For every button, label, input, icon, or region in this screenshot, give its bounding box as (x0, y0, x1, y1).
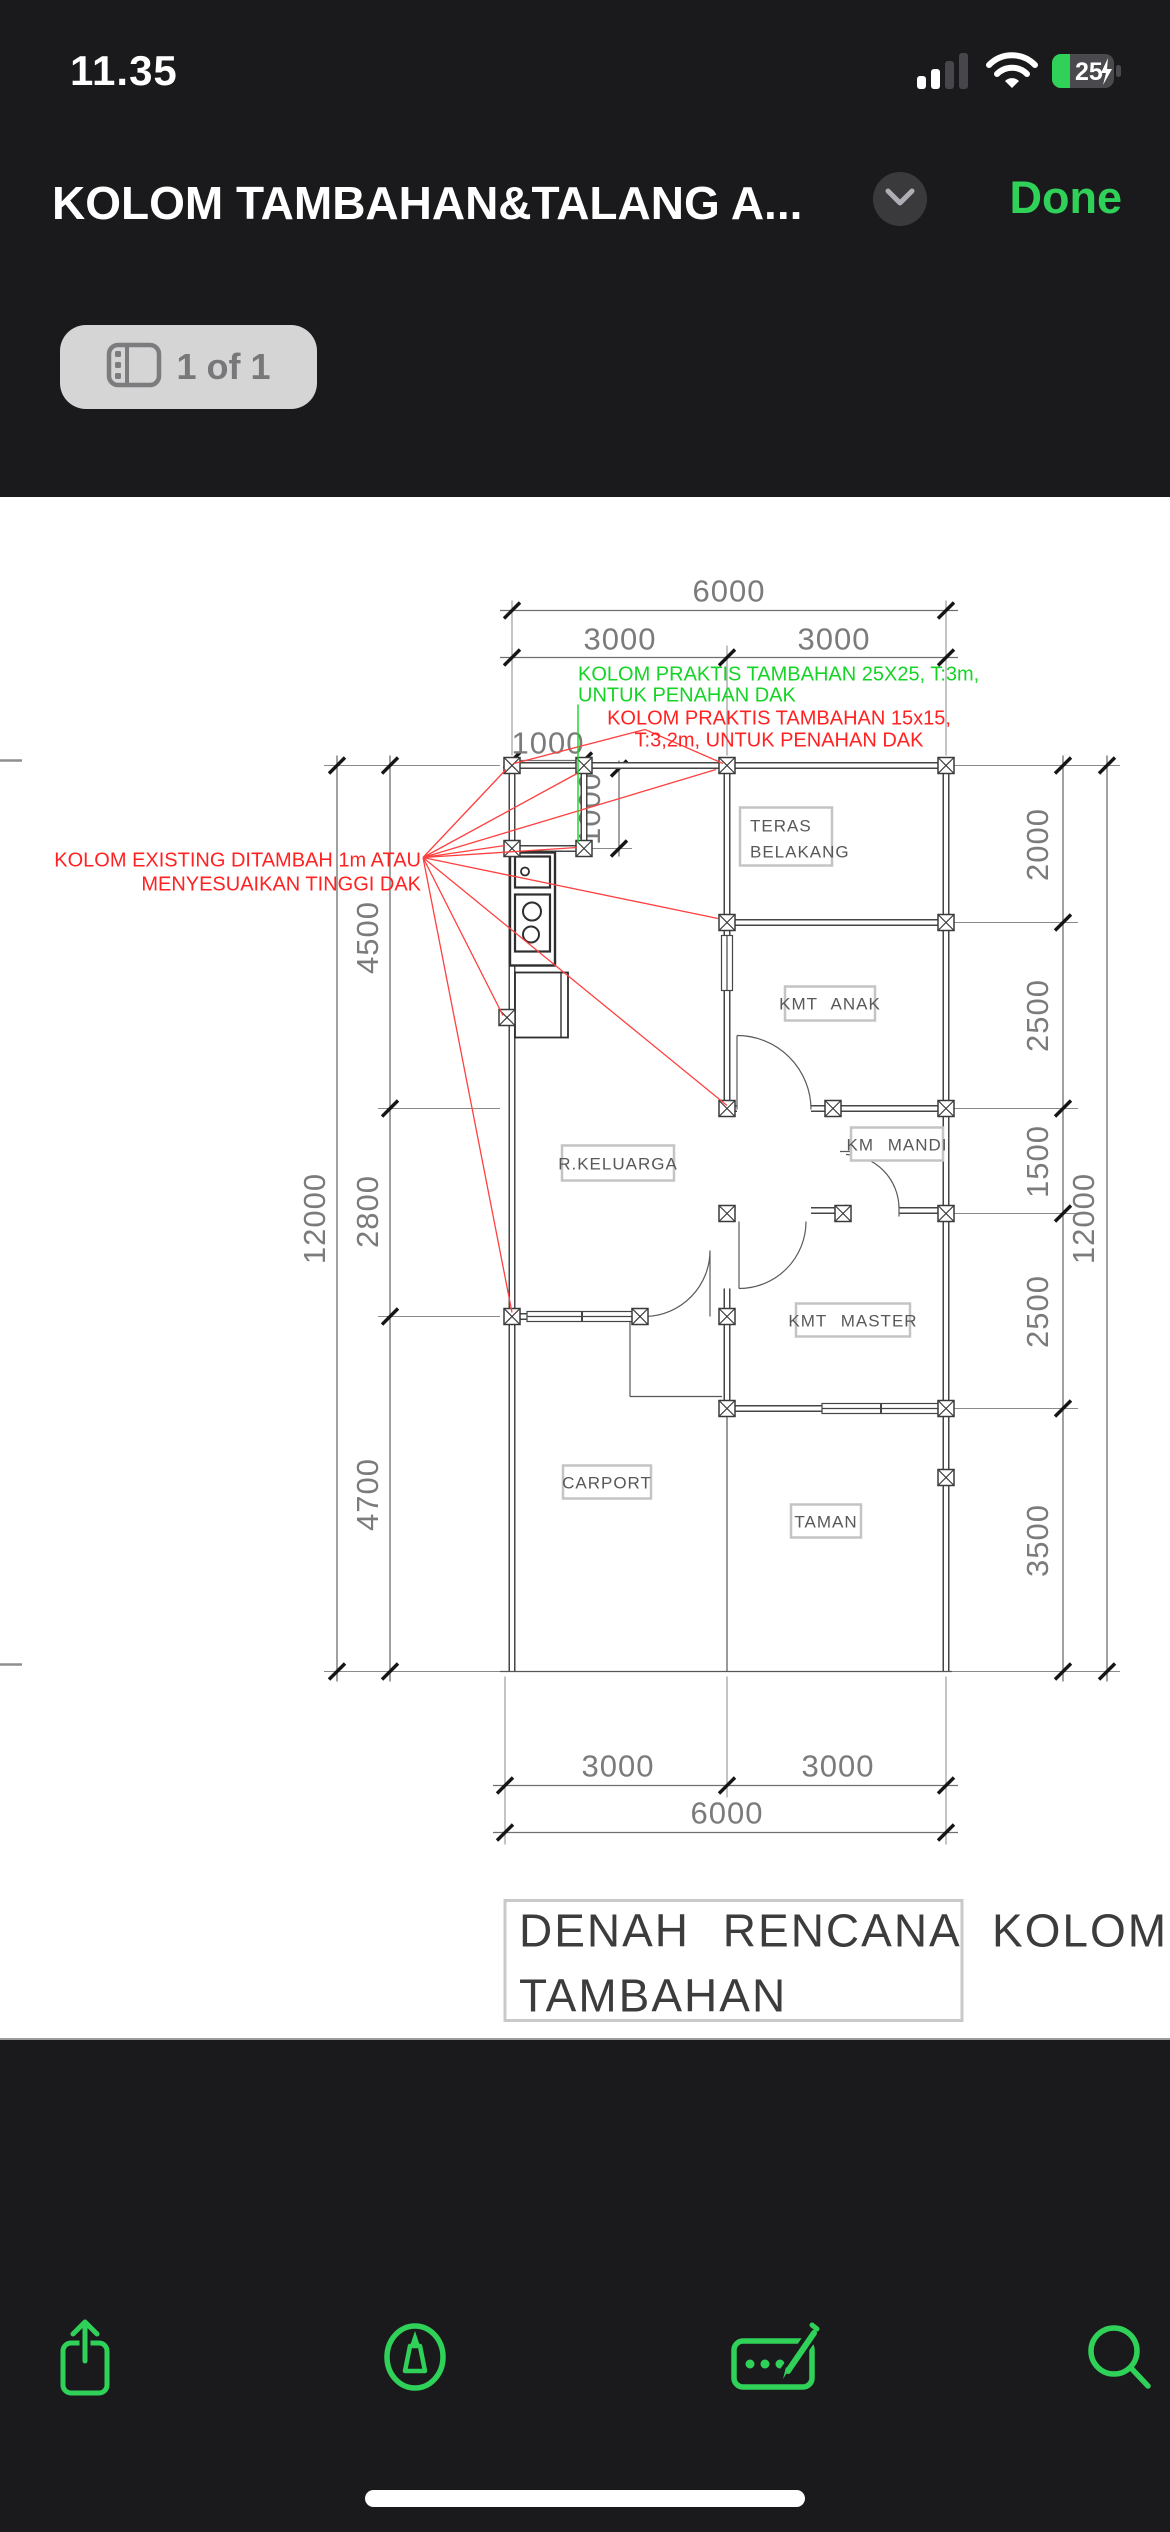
svg-text:2500: 2500 (1020, 979, 1055, 1052)
room-label-km-mandi: KM MANDI (847, 1128, 948, 1161)
drawing-caption: DENAH RENCANA KOLOM TAMBAHAN (505, 1901, 1168, 2022)
chevron-down-icon (883, 185, 917, 214)
pdf-page[interactable]: 6000 3000 3000 1000 1000 2000 2500 1500 … (0, 497, 1170, 2040)
svg-text:3000: 3000 (802, 1749, 875, 1784)
status-bar: 11.35 (0, 0, 1170, 130)
svg-text:R.KELUARGA: R.KELUARGA (558, 1155, 678, 1174)
markup-pen-icon (381, 2386, 449, 2403)
svg-text:KOLOM PRAKTIS TAMBAHAN 15x15,: KOLOM PRAKTIS TAMBAHAN 15x15, (607, 708, 951, 730)
svg-text:2800: 2800 (350, 1175, 385, 1248)
svg-text:2000: 2000 (1020, 808, 1055, 881)
svg-text:2500: 2500 (1020, 1275, 1055, 1348)
battery-icon: 25 (1052, 52, 1122, 95)
svg-text:BELAKANG: BELAKANG (750, 843, 850, 862)
cellular-signal-icon (917, 52, 972, 95)
svg-text:25: 25 (1075, 58, 1103, 86)
signature-button[interactable] (728, 2315, 824, 2404)
svg-text:KOLOM PRAKTIS TAMBAHAN 25X25,: KOLOM PRAKTIS TAMBAHAN 25X25, T:3m, (578, 664, 979, 686)
svg-text:DENAH RENCANA KOLOM: DENAH RENCANA KOLOM (519, 1905, 1168, 1957)
svg-text:TAMBAHAN: TAMBAHAN (519, 1970, 787, 2022)
svg-text:TAMAN: TAMAN (794, 1513, 857, 1532)
bottom-toolbar (0, 2315, 1170, 2415)
page-indicator-button[interactable]: 1 of 1 (60, 325, 317, 409)
svg-text:3000: 3000 (582, 1749, 655, 1784)
svg-text:6000: 6000 (691, 1796, 764, 1831)
svg-text:4500: 4500 (350, 901, 385, 974)
svg-text:KMT ANAK: KMT ANAK (779, 995, 881, 1014)
extension-lines (324, 601, 1120, 1845)
svg-text:CARPORT: CARPORT (562, 1474, 652, 1493)
svg-text:4700: 4700 (350, 1458, 385, 1531)
signature-icon (728, 2386, 824, 2403)
svg-text:MENYESUAIKAN TINGGI DAK: MENYESUAIKAN TINGGI DAK (141, 874, 421, 896)
svg-text:12000: 12000 (1066, 1173, 1101, 1264)
svg-text:6000: 6000 (693, 574, 766, 609)
svg-text:T:3,2m, UNTUK PENAHAN DAK: T:3,2m, UNTUK PENAHAN DAK (635, 730, 925, 752)
svg-text:3000: 3000 (798, 622, 871, 657)
share-button[interactable] (52, 2315, 118, 2404)
iphone-screen: 11.35 (0, 0, 1170, 2532)
svg-text:3500: 3500 (1020, 1504, 1055, 1577)
svg-text:12000: 12000 (297, 1173, 332, 1264)
share-icon (52, 2386, 118, 2403)
room-label-taman: TAMAN (791, 1505, 861, 1538)
room-labels: TERAS BELAKANG KMT ANAK KM MANDI R.KELUA… (558, 808, 947, 1538)
room-label-r-keluarga: R.KELUARGA (558, 1146, 678, 1181)
page-edge-marks (0, 761, 22, 1665)
title-menu-button[interactable] (873, 172, 927, 226)
svg-text:TERAS: TERAS (750, 817, 812, 836)
svg-text:1000: 1000 (572, 772, 607, 845)
svg-text:KOLOM EXISTING DITAMBAH 1m ATA: KOLOM EXISTING DITAMBAH 1m ATAU (54, 850, 421, 872)
search-button[interactable] (1086, 2315, 1156, 2404)
status-time: 11.35 (70, 47, 250, 95)
svg-text:KM MANDI: KM MANDI (847, 1136, 948, 1155)
room-label-kmt-anak: KMT ANAK (779, 987, 881, 1021)
thumbnails-icon (106, 342, 162, 393)
home-indicator[interactable] (365, 2490, 805, 2507)
page-indicator-label: 1 of 1 (176, 346, 270, 388)
svg-text:3000: 3000 (584, 622, 657, 657)
floor-plan-drawing: 6000 3000 3000 1000 1000 2000 2500 1500 … (0, 497, 1170, 2038)
search-icon (1086, 2386, 1156, 2403)
wifi-icon (986, 52, 1038, 95)
nav-bar: KOLOM TAMBAHAN&TALANG A... Done (0, 168, 1170, 258)
kitchen-fixtures (510, 853, 568, 1038)
room-label-kmt-master: KMT MASTER (788, 1304, 917, 1337)
markup-button[interactable] (381, 2315, 449, 2404)
room-label-teras-belakang: TERAS BELAKANG (740, 808, 850, 866)
status-icons: 25 (917, 52, 1122, 95)
svg-text:KMT MASTER: KMT MASTER (788, 1312, 917, 1331)
svg-text:UNTUK PENAHAN DAK: UNTUK PENAHAN DAK (578, 685, 796, 707)
room-label-carport: CARPORT (562, 1466, 652, 1499)
doors (646, 1036, 899, 1317)
done-button[interactable]: Done (1010, 172, 1123, 224)
svg-text:1500: 1500 (1020, 1125, 1055, 1198)
document-title: KOLOM TAMBAHAN&TALANG A... (52, 176, 852, 230)
